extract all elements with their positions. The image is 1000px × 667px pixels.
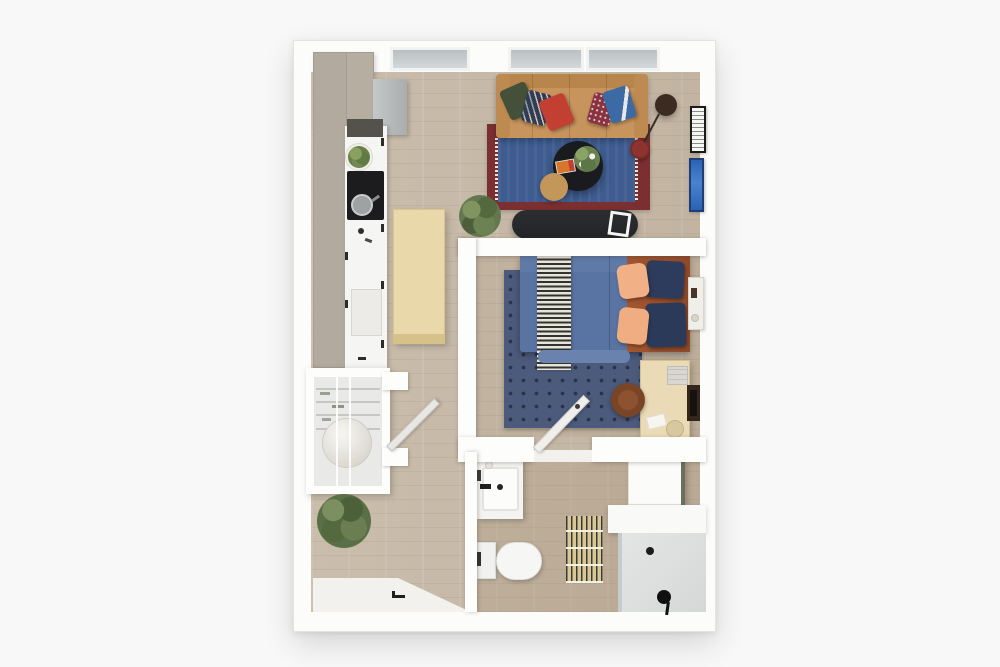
window-pane-left	[390, 47, 470, 71]
nightstand	[688, 277, 704, 330]
cabinet-handle-6	[381, 340, 384, 348]
closet-shelf-1	[316, 388, 380, 390]
wall-bedroom-bottom-right	[592, 437, 706, 462]
cabinet-handle-7	[358, 357, 366, 360]
bed-navy-pillow-bottom	[645, 302, 687, 347]
kitchen-plant	[348, 146, 370, 168]
closet-glass-mullion-2	[349, 377, 351, 486]
cabinet-handle-5	[345, 300, 348, 308]
closet-jamb-top	[382, 372, 408, 390]
kitchen-island	[393, 209, 445, 344]
closet-glass-mullion-1	[336, 377, 338, 486]
floor-plan-image	[0, 0, 1000, 667]
kitchen-tall-cabinet	[313, 52, 347, 368]
window-pane-right	[586, 47, 660, 71]
wall-bathroom-left	[465, 452, 477, 612]
kitchen-island-edge	[393, 334, 445, 344]
bedroom-door-handle	[575, 404, 580, 409]
shower-ledge	[608, 505, 706, 533]
console-plant	[459, 195, 501, 237]
bed-peach-pillow-top	[616, 262, 650, 300]
closet-shelf-item-1	[320, 392, 330, 395]
desk-chair-cushion	[618, 390, 638, 410]
cabinet-handle-2	[381, 224, 384, 232]
wall-bedroom-left	[458, 238, 476, 456]
cabinet-handle-3	[345, 252, 348, 260]
side-table-red	[630, 139, 650, 159]
cabinet-handle-1	[381, 138, 384, 146]
vanity-drain-dot	[497, 484, 503, 490]
cabinet-door-panel	[351, 289, 382, 336]
wall-art-blue	[689, 158, 704, 212]
vanity-side-mark	[477, 470, 481, 481]
desk-printer	[667, 366, 688, 385]
ottoman	[540, 173, 568, 201]
entry-door-handle-post	[392, 591, 395, 598]
coffee-table-plant	[574, 146, 600, 172]
toilet-bowl	[496, 542, 542, 580]
wall-art-poster	[690, 106, 706, 153]
closet-shelf-item-2	[332, 405, 344, 408]
bed-peach-pillow-bottom	[616, 307, 650, 346]
nightstand-item-round	[691, 314, 699, 322]
kitchen-upper-shelf	[347, 119, 383, 137]
desk-pad-tan	[666, 420, 684, 438]
sink-faucet-dot	[358, 228, 364, 234]
hallway-plant	[317, 494, 371, 548]
door-threshold	[534, 450, 592, 462]
closet-shelf-item-3	[322, 418, 331, 421]
wall-bedroom-top	[458, 238, 706, 256]
console-picture-frame	[607, 211, 631, 238]
window-pane-middle	[508, 47, 584, 71]
vanity-soap	[485, 461, 493, 469]
bedroom-wall-shelf-inner	[690, 390, 697, 416]
rug-fringe-left	[495, 136, 498, 200]
vanity-faucet	[480, 484, 491, 489]
cabinet-handle-4	[381, 281, 384, 289]
linen-cabinet	[628, 458, 684, 505]
laundry-basket	[322, 418, 372, 468]
toilet-tank-mark	[477, 552, 481, 566]
pot-on-cooktop	[351, 194, 373, 216]
bed-navy-pillow-top	[645, 260, 685, 299]
closet-shelf-3	[316, 414, 380, 416]
shower-drain	[646, 547, 654, 555]
nightstand-item-dark	[691, 288, 697, 298]
bath-mat	[566, 516, 603, 583]
closet-shelf-2	[316, 401, 380, 403]
shower-glass	[618, 533, 622, 612]
bed-drape	[538, 350, 630, 363]
sofa-arm-right	[634, 74, 648, 138]
linen-cabinet-side	[681, 458, 685, 505]
closet-jamb-bottom	[382, 448, 408, 466]
